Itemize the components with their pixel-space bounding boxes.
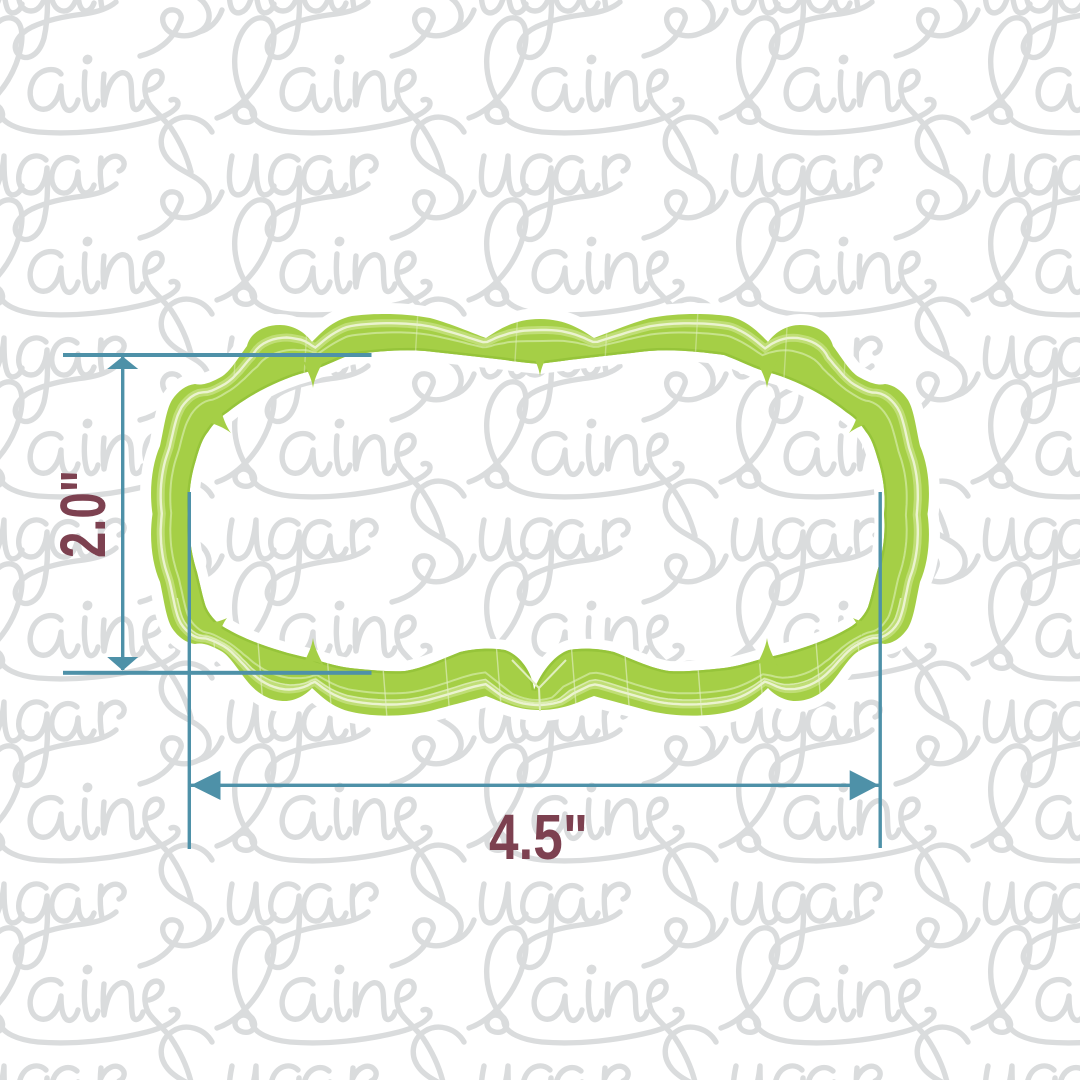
svg-text:4.5": 4.5" [489,801,588,873]
svg-text:2.0": 2.0" [47,470,119,558]
